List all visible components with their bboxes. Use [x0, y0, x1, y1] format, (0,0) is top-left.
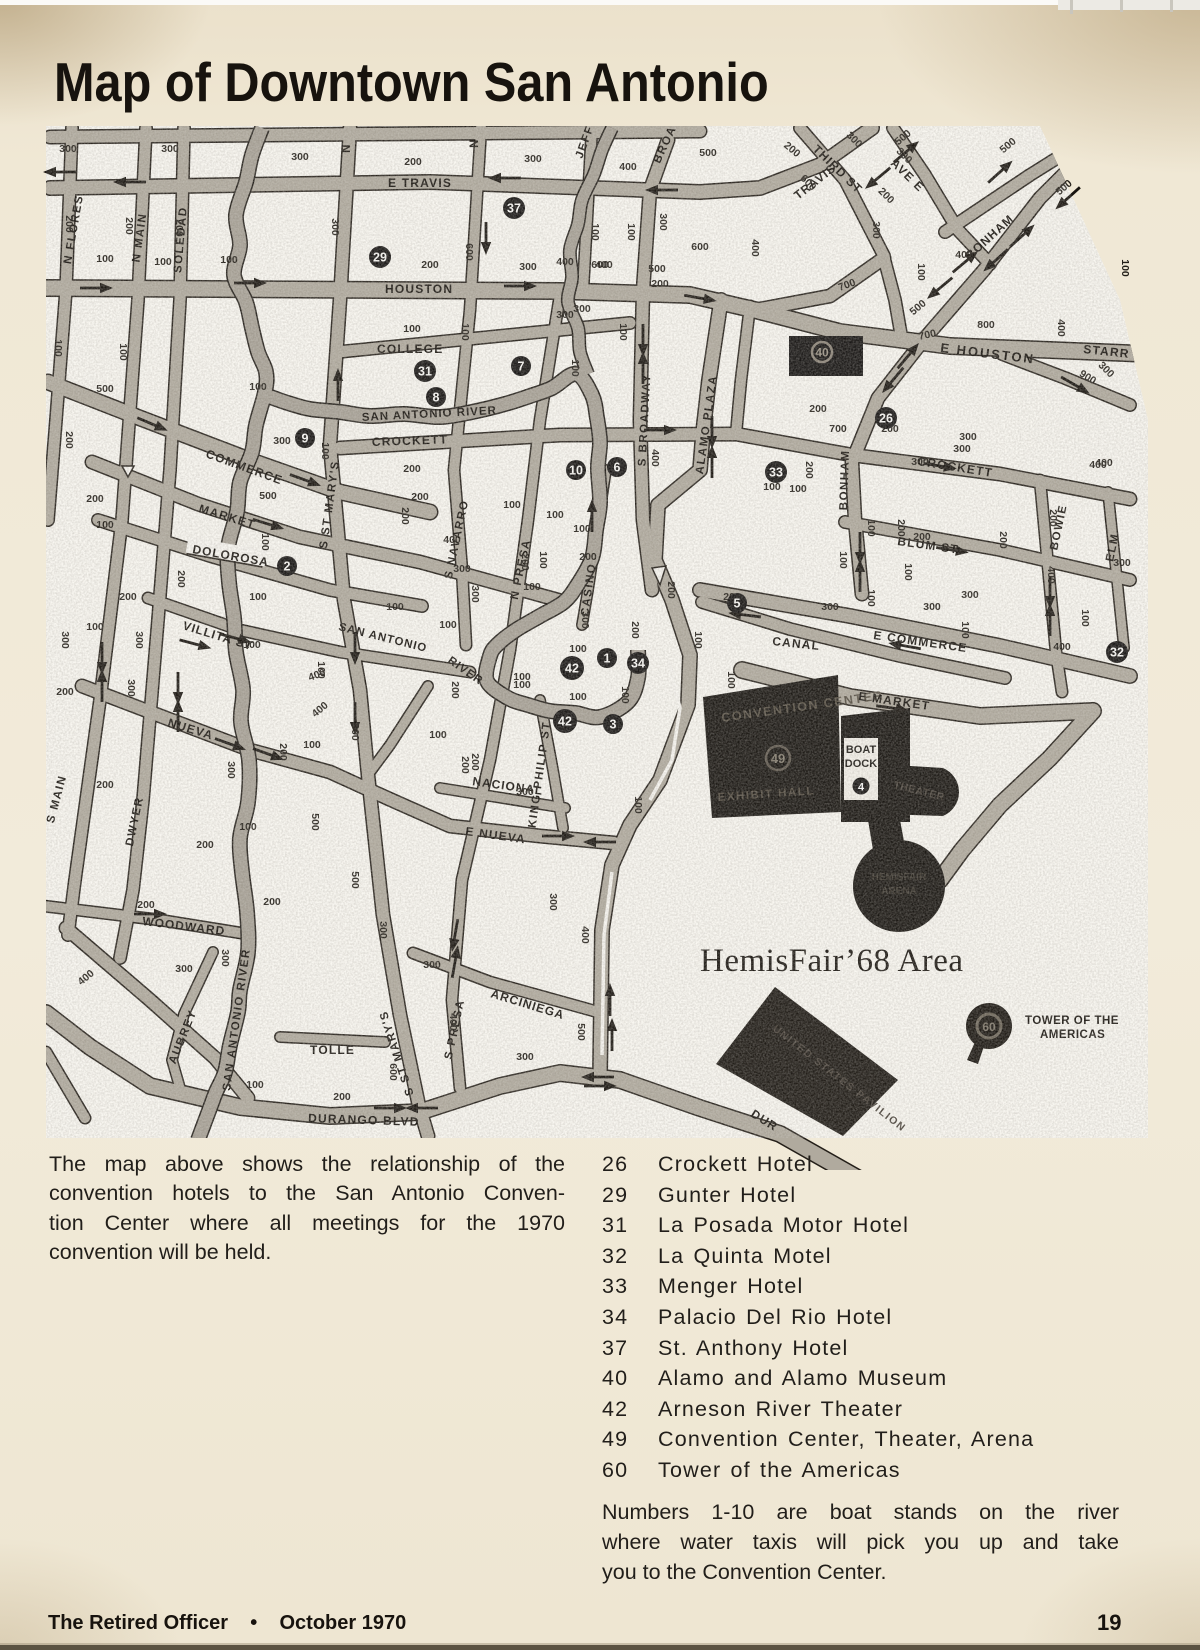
svg-text:100: 100 [1119, 259, 1131, 277]
